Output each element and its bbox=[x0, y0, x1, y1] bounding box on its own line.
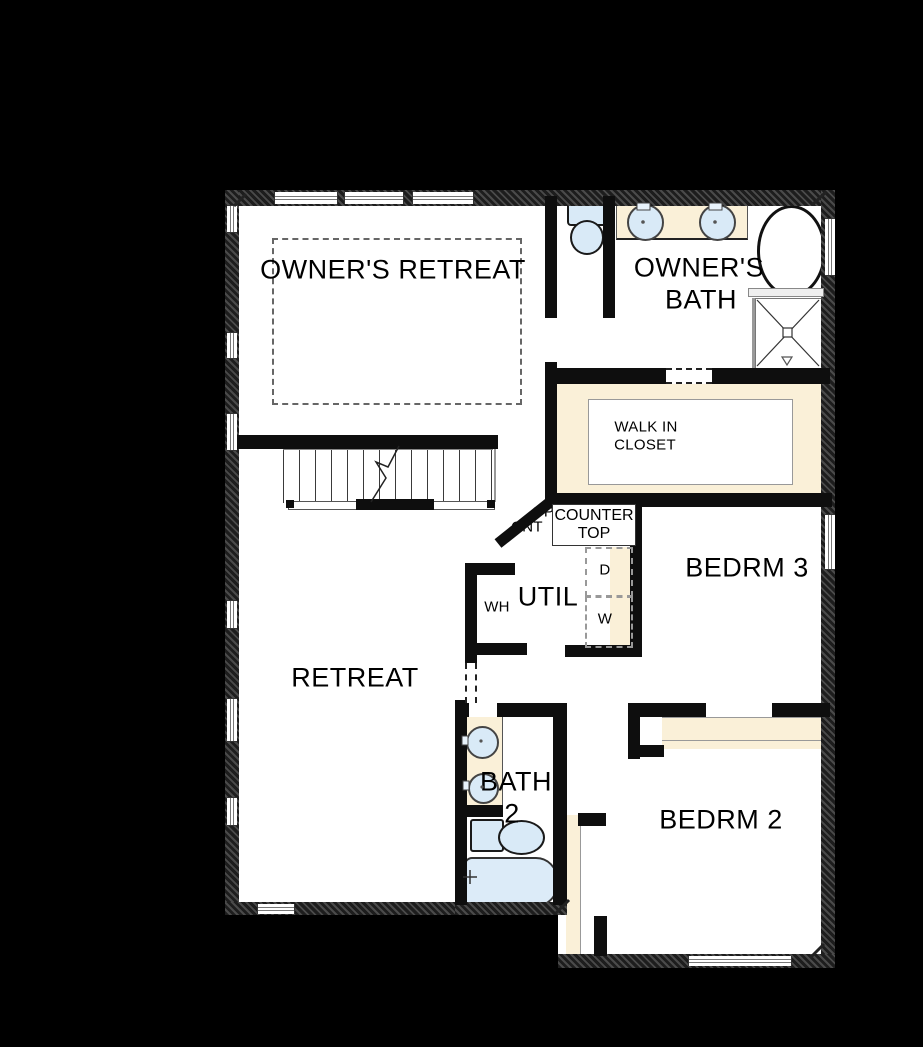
wall-segment bbox=[640, 745, 664, 757]
railing-post bbox=[286, 500, 294, 508]
counter-top-label-line1: COUNTER bbox=[554, 507, 633, 525]
floor-plan: OP CNT COUNTER TOP OWNER'S RETREAT OWNER… bbox=[0, 0, 923, 1047]
staircase-icon bbox=[283, 449, 493, 503]
room-label-owners-retreat: OWNER'S RETREAT bbox=[260, 255, 526, 286]
room-label-bath2: 2 bbox=[504, 799, 520, 830]
window bbox=[227, 413, 237, 451]
shower-wall bbox=[752, 298, 755, 368]
room-label-bedroom2: BEDRM 2 bbox=[659, 805, 783, 836]
bathtub-icon bbox=[464, 857, 558, 907]
exterior-wall bbox=[455, 902, 567, 915]
room-label-bedroom3: BEDRM 3 bbox=[685, 553, 809, 584]
sink-icon bbox=[627, 204, 664, 241]
window bbox=[688, 956, 792, 966]
toilet-icon bbox=[570, 220, 604, 255]
window bbox=[412, 192, 474, 204]
wall-segment bbox=[455, 700, 467, 905]
wall-segment bbox=[772, 703, 830, 717]
sink-icon bbox=[466, 726, 499, 759]
window bbox=[825, 514, 835, 570]
room-label-utility: UTIL bbox=[518, 582, 579, 613]
window bbox=[227, 698, 237, 742]
floor-area bbox=[232, 505, 468, 905]
room-label-retreat: RETREAT bbox=[291, 663, 419, 694]
room-label-walk-in-closet: WALK IN bbox=[614, 419, 677, 436]
window bbox=[227, 797, 237, 826]
room-label-owners-bath: BATH bbox=[665, 285, 737, 316]
wall-segment bbox=[603, 196, 615, 318]
closet-rod bbox=[662, 740, 821, 741]
label-dryer: D bbox=[599, 562, 610, 579]
wall-segment bbox=[553, 703, 567, 905]
label-washer: W bbox=[598, 611, 612, 628]
wall-segment bbox=[465, 563, 477, 655]
window bbox=[227, 205, 237, 233]
wall-segment bbox=[594, 916, 607, 956]
door-opening-retreat-hall bbox=[465, 663, 477, 703]
window bbox=[274, 192, 338, 204]
oval-bathtub-icon bbox=[757, 205, 826, 297]
window bbox=[227, 600, 237, 629]
window bbox=[257, 904, 295, 914]
stair-edge-line bbox=[494, 449, 496, 502]
room-label-owners-bath: OWNER'S bbox=[634, 253, 764, 284]
counter-top-label: COUNTER TOP bbox=[552, 504, 636, 546]
shower-ledge bbox=[748, 288, 824, 297]
closet-shelf bbox=[566, 815, 581, 955]
wall-segment bbox=[628, 703, 640, 759]
shower-icon bbox=[755, 298, 823, 370]
counter-top-label-line2: TOP bbox=[578, 525, 611, 543]
wall-segment bbox=[640, 703, 706, 717]
window bbox=[227, 332, 237, 359]
sink-icon bbox=[699, 204, 736, 241]
wall-segment bbox=[545, 196, 557, 318]
railing-post bbox=[487, 500, 495, 508]
door-opening-bath2 bbox=[469, 703, 497, 717]
room-label-walk-in-closet: CLOSET bbox=[614, 437, 676, 454]
closet-shelf bbox=[662, 717, 821, 749]
wall-segment bbox=[455, 805, 503, 817]
wall-segment bbox=[578, 813, 606, 826]
exterior-wall bbox=[821, 190, 835, 968]
door-opening-closet bbox=[666, 368, 712, 384]
window bbox=[825, 218, 835, 276]
window bbox=[344, 192, 404, 204]
wall-segment bbox=[232, 435, 498, 449]
handrail bbox=[356, 499, 434, 510]
label-water-heater: WH bbox=[484, 599, 510, 616]
room-label-bath2: BATH bbox=[480, 767, 552, 798]
